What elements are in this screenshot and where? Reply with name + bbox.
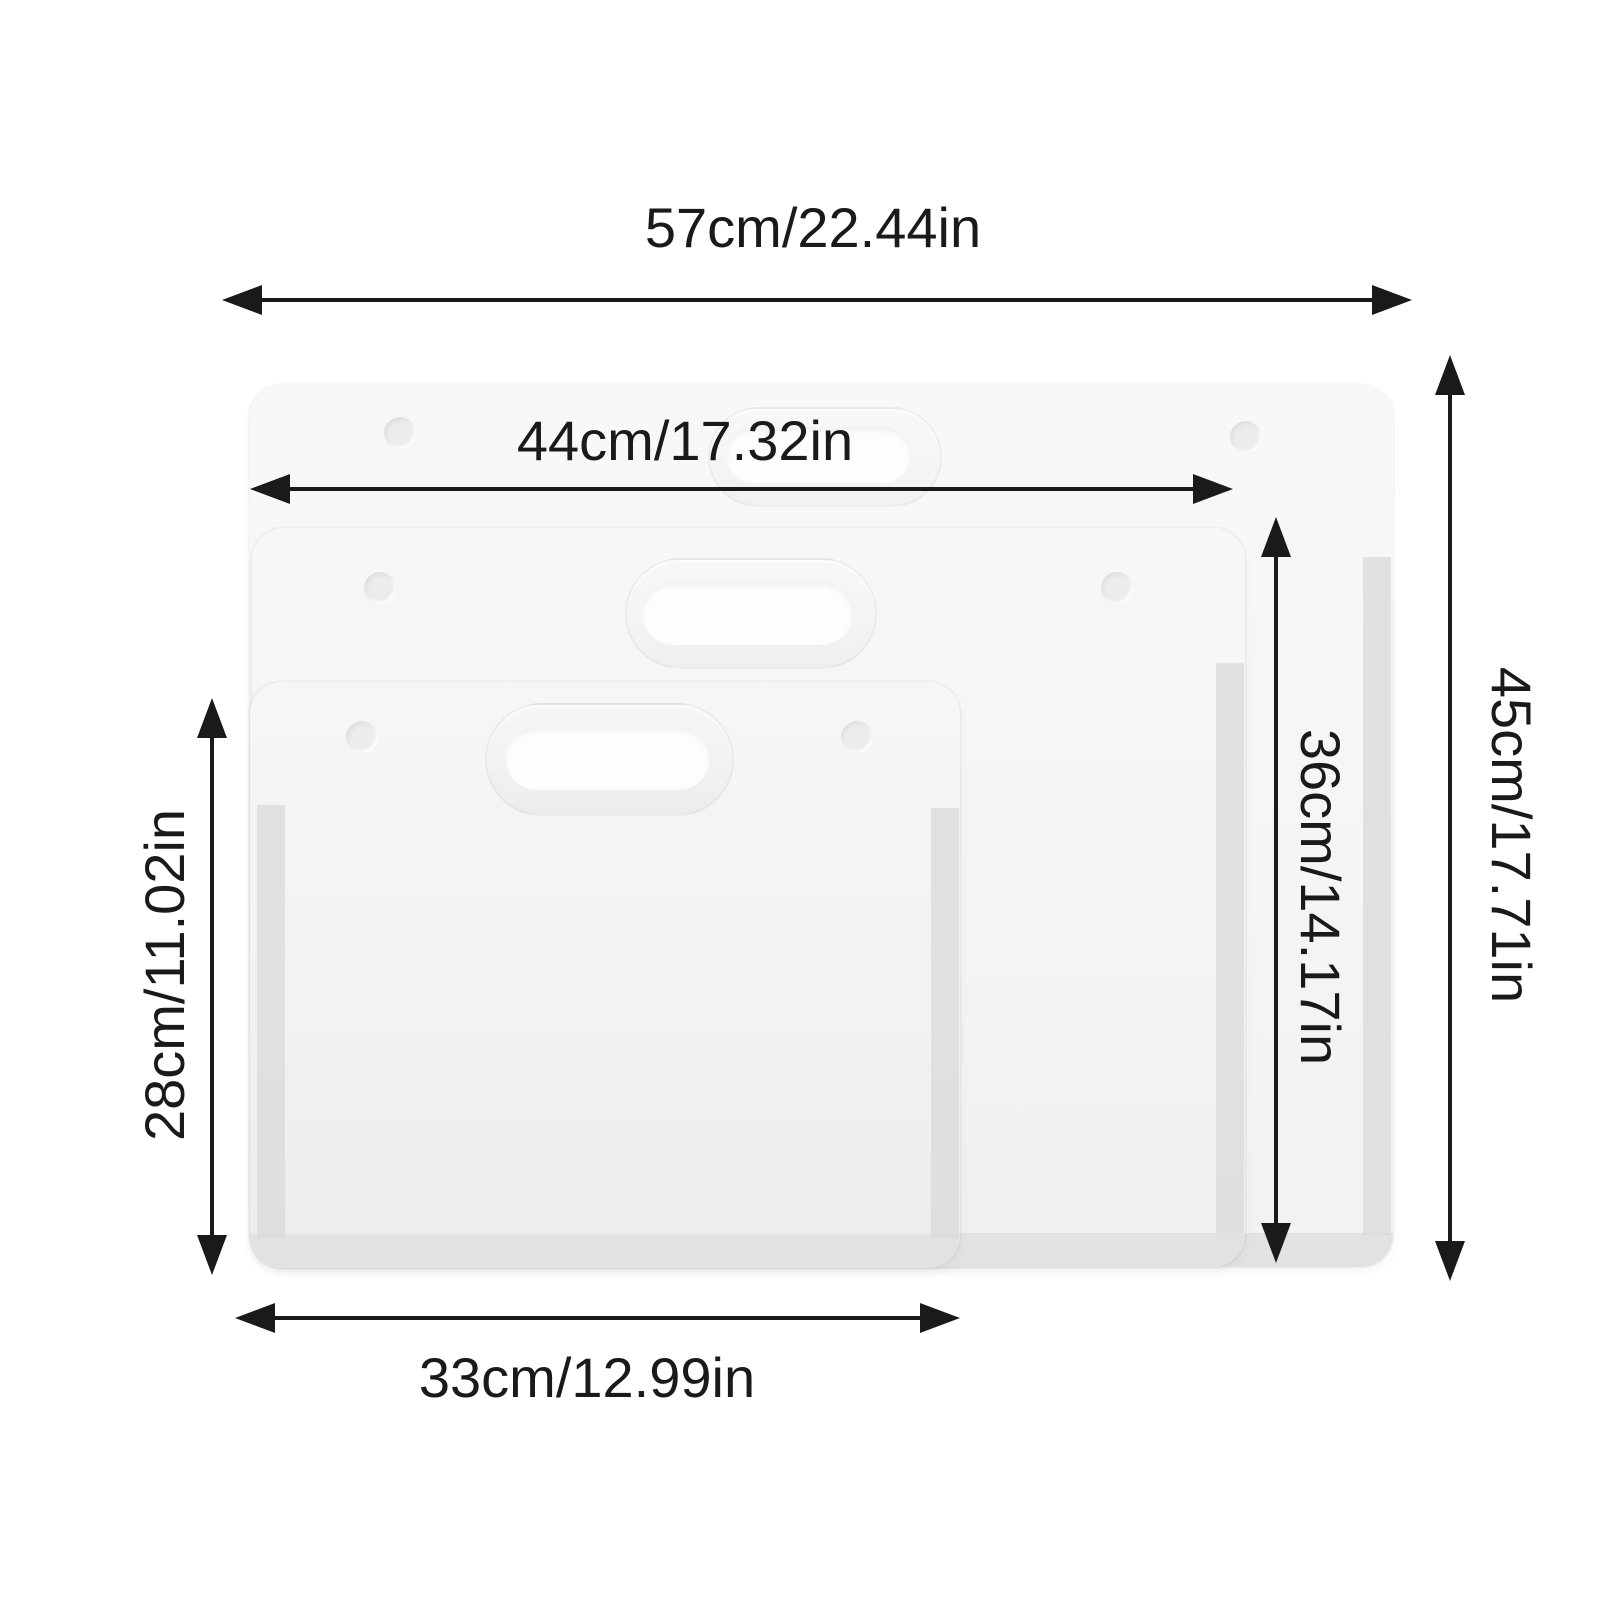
snap-button-icon <box>1230 421 1262 453</box>
snap-button-icon <box>1101 572 1133 604</box>
dimension-label-width-small: 33cm/12.99in <box>419 1350 755 1406</box>
height-arrow-middle <box>1261 517 1291 1263</box>
arrow-line <box>1448 387 1452 1249</box>
folder-small-gusset-strip-right <box>931 808 959 1238</box>
folder-small-bottom-edge <box>250 1234 960 1268</box>
arrowhead-right-icon <box>1193 474 1233 504</box>
width-arrow-small <box>235 1303 960 1333</box>
dimension-label-height-small: 28cm/11.02in <box>137 809 193 1141</box>
snap-button-icon <box>346 721 378 753</box>
handle-cutout <box>505 727 710 790</box>
height-arrow-large <box>1435 355 1465 1281</box>
snap-button-icon <box>841 721 873 753</box>
width-arrow-large <box>222 285 1412 315</box>
dimension-label-height-large: 45cm/17.71in <box>1483 667 1539 1003</box>
dimension-label-width-middle: 44cm/17.32in <box>517 413 853 469</box>
height-arrow-small <box>197 698 227 1275</box>
arrow-line <box>254 298 1380 302</box>
arrowhead-down-icon <box>1435 1241 1465 1281</box>
arrowhead-right-icon <box>920 1303 960 1333</box>
arrowhead-right-icon <box>1372 285 1412 315</box>
arrow-line <box>282 487 1201 491</box>
folder-middle-gusset-strip-right <box>1216 663 1244 1233</box>
folder-small <box>250 682 960 1268</box>
arrow-line <box>1274 549 1278 1231</box>
arrowhead-down-icon <box>197 1235 227 1275</box>
arrowhead-down-icon <box>1261 1223 1291 1263</box>
dimension-label-width-large: 57cm/22.44in <box>645 200 981 256</box>
product-dimension-diagram: 57cm/22.44in 44cm/17.32in 33cm/12.99in 4… <box>0 0 1600 1600</box>
dimension-label-height-middle: 36cm/14.17in <box>1292 729 1348 1065</box>
handle-cutout <box>642 582 853 645</box>
width-arrow-middle <box>250 474 1233 504</box>
folder-large-gusset-strip-right <box>1363 557 1391 1235</box>
snap-button-icon <box>384 417 416 449</box>
arrow-line <box>210 730 214 1243</box>
folder-small-gusset-strip-left <box>257 805 285 1238</box>
arrow-line <box>267 1316 928 1320</box>
snap-button-icon <box>364 572 396 604</box>
